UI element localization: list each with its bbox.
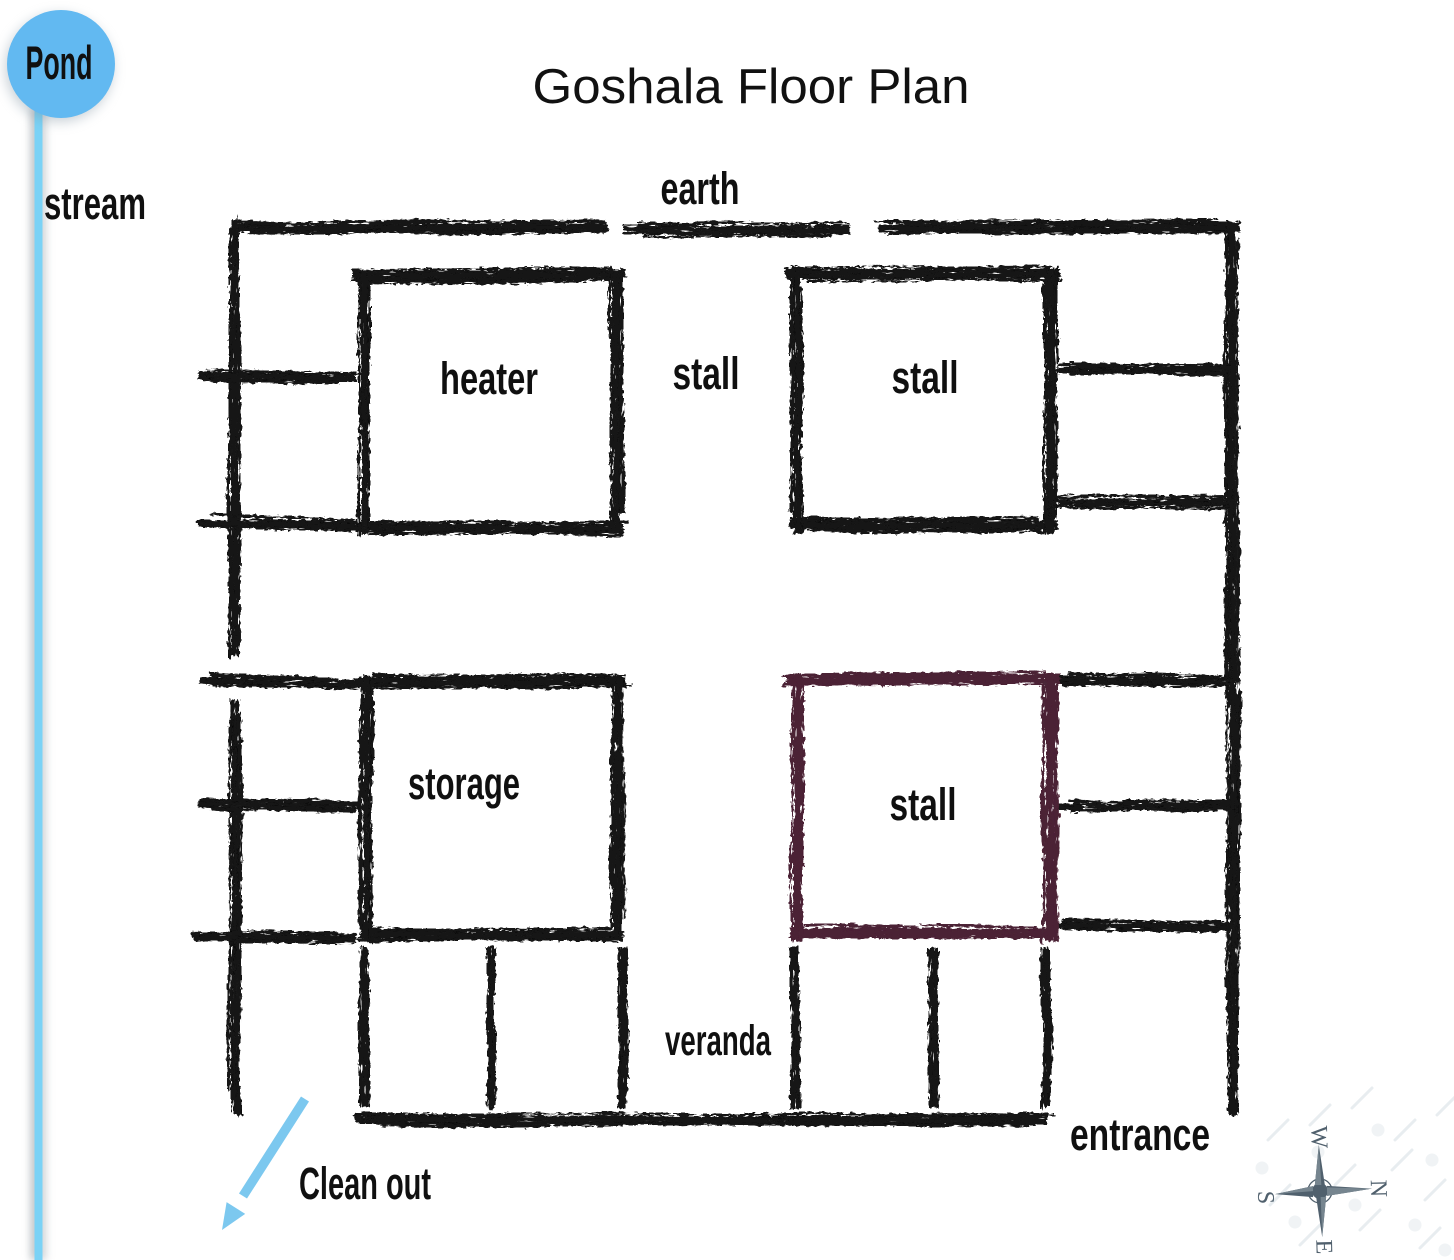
svg-text:stream: stream — [44, 178, 146, 229]
svg-text:E: E — [1310, 1239, 1336, 1254]
svg-text:Pond: Pond — [26, 36, 93, 89]
svg-text:entrance: entrance — [1070, 1109, 1210, 1160]
svg-text:S: S — [1252, 1190, 1278, 1204]
svg-text:stall: stall — [890, 779, 957, 830]
svg-text:heater: heater — [440, 353, 538, 404]
svg-text:Goshala Floor Plan: Goshala Floor Plan — [533, 60, 970, 114]
svg-text:veranda: veranda — [665, 1017, 772, 1065]
svg-text:earth: earth — [661, 163, 740, 214]
svg-text:Clean out: Clean out — [299, 1158, 431, 1209]
svg-text:storage: storage — [408, 758, 520, 809]
svg-text:W: W — [1305, 1125, 1332, 1149]
svg-text:stall: stall — [673, 348, 740, 399]
svg-text:stall: stall — [892, 352, 959, 403]
svg-text:N: N — [1365, 1179, 1391, 1197]
